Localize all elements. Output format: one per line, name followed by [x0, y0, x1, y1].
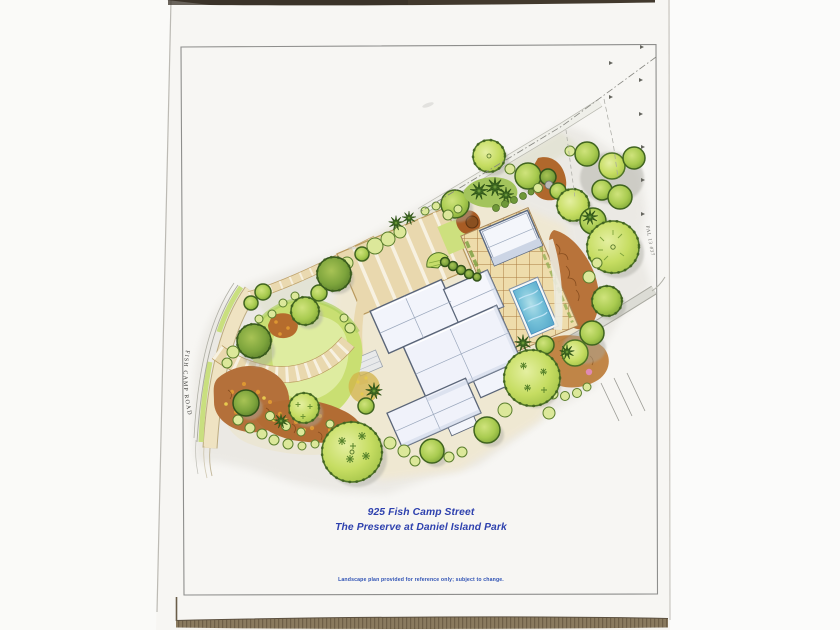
svg-text:The Preserve at Daniel Island: The Preserve at Daniel Island Park [335, 522, 508, 533]
svg-text:Landscape plan provided for re: Landscape plan provided for reference on… [338, 577, 504, 583]
svg-text:925 Fish Camp Street: 925 Fish Camp Street [368, 507, 475, 518]
